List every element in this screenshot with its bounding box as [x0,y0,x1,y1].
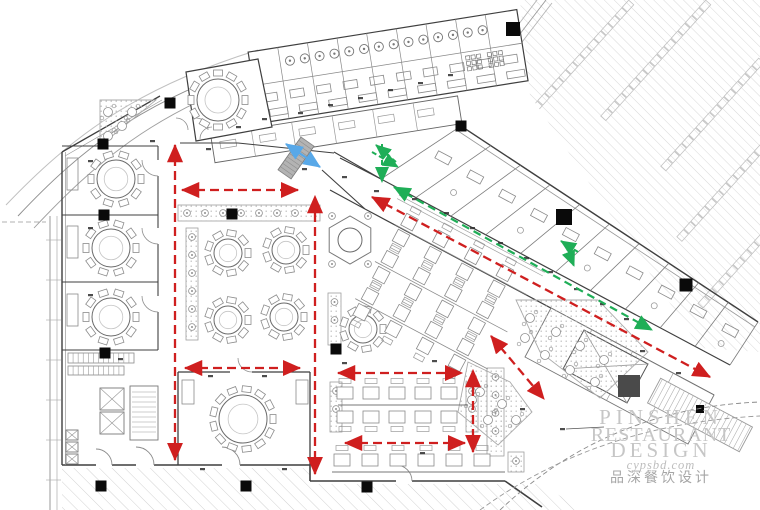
entrance-door-arc [396,465,412,481]
terrace-table [484,416,493,425]
chair [119,151,129,159]
chair [238,327,248,338]
room-door-arc [142,228,158,244]
round-table [210,386,276,453]
chair [261,319,270,330]
chair [215,394,225,405]
column [362,482,373,493]
parking-area [492,0,760,352]
chair [210,421,218,431]
micro-label [640,350,645,352]
chair [261,305,270,316]
chair [269,329,280,339]
table-top [92,229,130,267]
chair [242,445,252,452]
service-room-fixture [562,228,579,242]
chair [227,230,237,237]
parking-stall [517,117,528,129]
micro-label [118,358,123,360]
chair [391,379,403,384]
micro-label [470,227,475,229]
column [331,344,342,355]
column [680,279,693,292]
round-table [261,294,307,341]
chair [391,427,403,432]
terrace-table [526,314,535,323]
banquet-table [441,411,457,423]
watermark: PINSHEN RESTAURANT DESIGN cypsbd.com 品深餐… [591,405,732,486]
banquet-table [441,387,457,399]
chair [98,268,108,276]
micro-label [88,294,93,296]
chair [348,341,359,351]
chair [103,151,113,159]
chair [213,265,224,275]
chair [98,337,108,345]
chair [214,124,223,130]
room-door-arc [142,296,158,312]
chair [417,427,429,432]
restaurant-floor-plan: PINSHEN RESTAURANT DESIGN cypsbd.com 品深餐… [0,0,760,510]
column [241,481,252,492]
micro-label [560,428,565,430]
chair [364,446,376,451]
chair [362,345,372,352]
chair [269,295,280,305]
round-table [263,227,309,274]
chair [255,439,266,449]
chair [271,262,282,272]
room-door-arc [238,358,252,372]
chair [283,294,293,301]
service-room-fixture [499,189,516,203]
parking-ground-hatch [492,0,760,352]
chair [417,379,429,384]
column [456,121,467,132]
floor-plan-canvas: PINSHEN RESTAURANT DESIGN cypsbd.com 品深餐… [0,0,760,510]
chair [213,332,224,342]
micro-label [388,89,393,91]
terrace-table [541,351,550,360]
chair [126,297,136,308]
chair [227,387,238,396]
chair [263,238,272,249]
entrance-door-arc [176,118,188,130]
chair [373,336,383,347]
chair [238,260,248,271]
banquet-table [390,454,406,466]
micro-label [418,82,423,84]
micro-label [262,118,267,120]
column [227,209,238,220]
banquet-table [337,387,353,399]
cabinet [182,380,194,404]
chair [86,297,96,308]
banquet-table [415,411,431,423]
micro-label [298,112,303,114]
micro-label [676,372,681,374]
chair [227,443,238,452]
chair [214,70,223,76]
chair [263,252,272,263]
chair [242,386,252,393]
chair [205,255,214,266]
south-wall [62,447,584,510]
banquet-table [363,387,379,399]
service-room-fixture [467,170,484,184]
chair [301,313,307,322]
terrace-table [521,334,530,343]
chair [443,427,455,432]
service-room-fixture [530,208,547,222]
table-top [97,160,135,198]
column [165,98,176,109]
terrace-table [576,342,585,351]
micro-label [208,375,213,377]
chair [303,246,309,255]
square-table [496,264,514,282]
chair [445,370,456,379]
terrace-table [591,378,600,387]
table-top [197,79,239,121]
chair [131,159,141,170]
square-table [448,354,466,372]
chair [133,313,139,322]
micro-label [448,74,453,76]
chair [131,188,141,199]
sideboard [67,294,78,326]
banquet-table [418,454,434,466]
watermark-chinese: 品深餐饮设计 [610,470,712,486]
column [556,209,572,225]
micro-label [444,212,449,214]
exterior-walkway-hatch [62,468,584,510]
micro-label [282,468,287,470]
terrace-table [552,328,561,337]
chair [83,244,89,253]
chair [245,316,251,325]
chair [365,427,377,432]
entrance-door-arc [136,447,154,465]
square-table [416,337,434,355]
chair [86,257,96,268]
chair [238,235,248,246]
chair [126,326,136,337]
micro-label [262,375,267,377]
chair [365,379,377,384]
round-table [83,289,139,345]
table-top [272,236,300,264]
chair [205,322,214,333]
table-top [92,298,130,336]
chair [336,446,348,451]
service-room-fixture [626,266,643,280]
chair [227,269,237,276]
chair [114,268,124,276]
chair [213,231,224,241]
micro-label [432,360,437,362]
chair [255,389,266,399]
chair [88,175,94,184]
chair [91,188,101,199]
micro-label [420,452,425,454]
sideboard [67,226,78,258]
chair [420,446,432,451]
chair [285,266,295,273]
chair [476,446,488,451]
chair [114,220,124,228]
micro-label [412,198,417,200]
terrace-table [104,108,113,117]
chair [205,241,214,252]
micro-label [342,176,347,178]
route-arrow-green-small [566,246,574,266]
chair [413,353,424,362]
dark-shaft [618,375,640,397]
micro-label [200,468,205,470]
terrace-table [512,416,521,425]
chair [227,297,237,304]
chair [86,228,96,239]
chair [270,415,276,424]
column [506,22,520,36]
micro-label [302,168,307,170]
micro-label [88,160,93,162]
micro-label [520,408,525,410]
square-table [385,320,403,338]
chair [119,199,129,207]
chair [126,228,136,239]
chair [294,299,304,310]
chair [245,249,251,258]
chair [86,326,96,337]
chair [83,313,89,322]
round-table [205,230,251,277]
table-top [270,303,298,331]
micro-label [374,190,379,192]
terrace-table [128,108,137,117]
chair [210,407,218,417]
chair [242,96,248,105]
chair [296,257,306,268]
chair [285,227,295,234]
chair [238,302,248,313]
shelf-unit [68,366,124,375]
chair [133,244,139,253]
table-top [219,395,267,443]
chair [265,400,274,411]
banquet-table [474,454,490,466]
chair [227,336,237,343]
parking-stall [524,109,535,121]
micro-label [88,227,93,229]
round-table [205,297,251,344]
micro-label [342,362,347,364]
chair [283,333,293,340]
chair [265,428,274,439]
chair [138,175,144,184]
route-arrow-green-small [561,241,578,252]
route-arrow-green-small [376,145,396,162]
terrace-table [118,122,127,131]
hex-booth [329,216,371,264]
chair [215,434,225,445]
round-table [88,151,144,207]
table-top [214,306,242,334]
banquet-table [389,411,405,423]
column [100,348,111,359]
chair [205,308,214,319]
service-room-fixture [594,247,611,261]
chair [392,446,404,451]
banquet-table [362,454,378,466]
banquet-table [389,387,405,399]
chair [188,96,194,105]
chair [114,289,124,297]
table-top [214,239,242,267]
banquet-table [446,454,462,466]
terrace-table [498,400,507,409]
service-room-fixture [435,151,452,165]
micro-label [328,104,333,106]
terrace-table [600,356,609,365]
entrance-door-arc [96,449,112,465]
chair [98,220,108,228]
terrace-table [566,366,575,375]
chair [296,232,306,243]
chair [448,446,460,451]
micro-label [206,148,211,150]
banquet-table [415,387,431,399]
banquet-table [363,411,379,423]
chair [98,289,108,297]
chair [213,298,224,308]
micro-label [624,318,629,320]
micro-label [236,126,241,128]
micro-label [150,140,155,142]
banquet-table [334,454,350,466]
chair [271,228,282,238]
chair [126,257,136,268]
column [96,481,107,492]
room-door-arc [142,160,158,176]
column [98,139,109,150]
chair [103,199,113,207]
cabinet [296,380,308,404]
banquet-table [337,411,353,423]
chair [114,337,124,345]
chair [443,379,455,384]
micro-label [358,97,363,99]
column [99,210,110,221]
chair [294,324,304,335]
